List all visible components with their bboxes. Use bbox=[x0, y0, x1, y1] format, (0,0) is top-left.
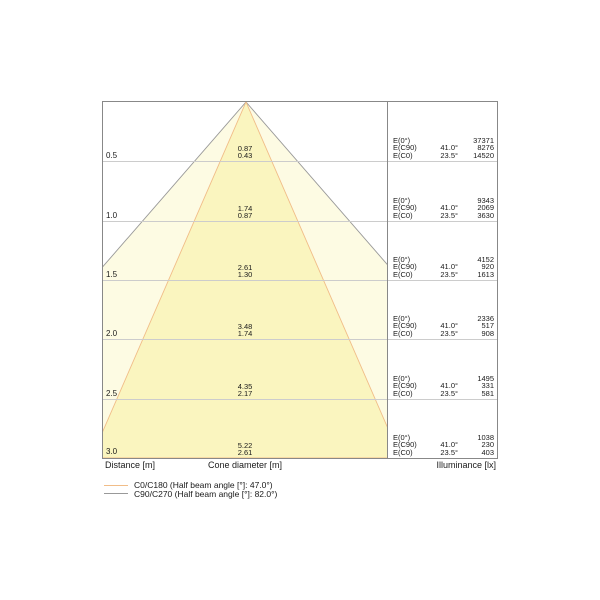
illuminance-block: E(0°) 4152 E(C90) 41.0° 920 E(C0) 23.5° … bbox=[393, 256, 494, 278]
illuminance-block: E(0°) 1038 E(C90) 41.0° 230 E(C0) 23.5° … bbox=[393, 434, 494, 456]
gridline-2.0m bbox=[103, 339, 497, 340]
ec0-value: 908 bbox=[458, 330, 494, 337]
plot-area: 0.5 0.87 0.43 E(0°) 37371 E(C90) 41.0° 8… bbox=[102, 101, 498, 459]
cone-diameter-values: 4.35 2.17 bbox=[103, 383, 387, 398]
ec0-angle: 23.5° bbox=[429, 449, 458, 456]
cone-diameter-values: 1.74 0.87 bbox=[103, 205, 387, 220]
ec0-label: E(C0) bbox=[393, 212, 429, 219]
ec0-label: E(C0) bbox=[393, 152, 429, 159]
ec0-value: 3630 bbox=[458, 212, 494, 219]
cone-diameter-values: 3.48 1.74 bbox=[103, 323, 387, 338]
illuminance-line-ec0: E(C0) 23.5° 403 bbox=[393, 449, 494, 456]
axis-labels-row: Distance [m] Cone diameter [m] Illuminan… bbox=[102, 460, 498, 472]
ec0-label: E(C0) bbox=[393, 449, 429, 456]
ec0-angle: 23.5° bbox=[429, 330, 458, 337]
cone-diagram-canvas: 0.5 0.87 0.43 E(0°) 37371 E(C90) 41.0° 8… bbox=[0, 0, 600, 600]
ec0-label: E(C0) bbox=[393, 271, 429, 278]
illuminance-axis-label: Illuminance [lx] bbox=[436, 460, 496, 470]
cone-diameter-values: 5.22 2.61 bbox=[103, 442, 387, 457]
cone-diameter-values: 0.87 0.43 bbox=[103, 145, 387, 160]
ec0-angle: 23.5° bbox=[429, 212, 458, 219]
gridline-1.0m bbox=[103, 221, 497, 222]
illuminance-block: E(0°) 1495 E(C90) 41.0° 331 E(C0) 23.5° … bbox=[393, 375, 494, 397]
gridline-2.5m bbox=[103, 399, 497, 400]
cone-diameter-c0: 2.61 bbox=[103, 449, 387, 456]
cone-diameter-c0: 0.87 bbox=[103, 212, 387, 219]
ec0-label: E(C0) bbox=[393, 390, 429, 397]
cone-diameter-c0: 2.17 bbox=[103, 390, 387, 397]
cone-diameter-values: 2.61 1.30 bbox=[103, 264, 387, 279]
ec0-angle: 23.5° bbox=[429, 271, 458, 278]
cone-diameter-c0: 1.30 bbox=[103, 271, 387, 278]
ec0-value: 403 bbox=[458, 449, 494, 456]
gridline-0.5m bbox=[103, 161, 497, 162]
ec0-value: 581 bbox=[458, 390, 494, 397]
cone-diameter-axis-label: Cone diameter [m] bbox=[102, 460, 388, 470]
illuminance-line-ec0: E(C0) 23.5° 3630 bbox=[393, 212, 494, 219]
ec0-angle: 23.5° bbox=[429, 152, 458, 159]
illuminance-line-ec0: E(C0) 23.5° 581 bbox=[393, 390, 494, 397]
legend-item-c90-c270: C90/C270 (Half beam angle [°]: 82.0°) bbox=[104, 490, 277, 499]
c0-c180-line-swatch bbox=[104, 485, 128, 486]
illuminance-line-ec0: E(C0) 23.5° 14520 bbox=[393, 152, 494, 159]
legend: C0/C180 (Half beam angle [°]: 47.0°) C90… bbox=[104, 481, 277, 498]
ec0-value: 14520 bbox=[458, 152, 494, 159]
panel-divider bbox=[387, 102, 388, 458]
illuminance-line-ec0: E(C0) 23.5° 1613 bbox=[393, 271, 494, 278]
gridline-1.5m bbox=[103, 280, 497, 281]
illuminance-line-ec0: E(C0) 23.5° 908 bbox=[393, 330, 494, 337]
illuminance-block: E(0°) 9343 E(C90) 41.0° 2069 E(C0) 23.5°… bbox=[393, 197, 494, 219]
cone-diameter-c0: 1.74 bbox=[103, 330, 387, 337]
c90-c270-line-swatch bbox=[104, 493, 128, 494]
illuminance-block: E(0°) 37371 E(C90) 41.0° 8276 E(C0) 23.5… bbox=[393, 137, 494, 159]
ec0-label: E(C0) bbox=[393, 330, 429, 337]
illuminance-block: E(0°) 2336 E(C90) 41.0° 517 E(C0) 23.5° … bbox=[393, 315, 494, 337]
legend-label-c90-c270: C90/C270 (Half beam angle [°]: 82.0°) bbox=[134, 490, 277, 499]
ec0-value: 1613 bbox=[458, 271, 494, 278]
ec0-angle: 23.5° bbox=[429, 390, 458, 397]
cone-diameter-c0: 0.43 bbox=[103, 152, 387, 159]
